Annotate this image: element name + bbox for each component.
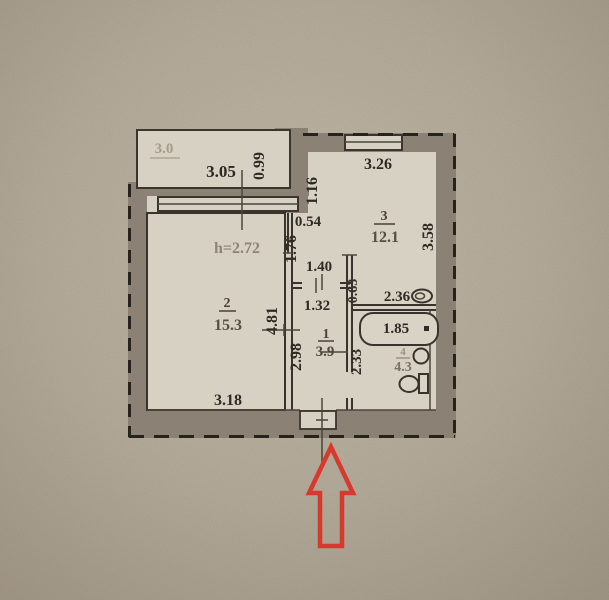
- dim-3-58: 3.58: [420, 223, 437, 251]
- outer-wall-left: [128, 182, 147, 438]
- dim-3-05: 3.05: [206, 162, 236, 181]
- hallway-number-label: 1: [323, 327, 330, 342]
- dim-3-26: 3.26: [364, 156, 392, 173]
- kitchen-number-label: 3: [381, 209, 388, 224]
- dim-2-33: 2.33: [349, 349, 365, 375]
- floor-plan-canvas: 3.0 3.05 0.99 3.26 1.16 3.58 3 12.1 0.54…: [0, 0, 609, 600]
- kitchen-area-label: 12.1: [371, 229, 399, 246]
- dim-0-99: 0.99: [251, 152, 268, 180]
- dim-4-81: 4.81: [264, 307, 281, 335]
- ceiling-height-label: h=2.72: [214, 240, 260, 257]
- bathroom-area-label: 4.3: [394, 360, 412, 375]
- living-number-label: 2: [224, 296, 231, 311]
- living-area-label: 15.3: [214, 317, 242, 334]
- dim-1-32: 1.32: [304, 298, 330, 314]
- bathroom-number-label: 4: [400, 346, 406, 358]
- dim-0-54: 0.54: [295, 214, 322, 230]
- dim-2-36: 2.36: [384, 289, 411, 305]
- dim-0-63: 0.63: [346, 279, 361, 304]
- hallway-area-label: 3.9: [316, 344, 335, 360]
- toilet-bowl-icon: [400, 376, 419, 392]
- dim-2-98: 2.98: [288, 343, 305, 371]
- balcony-area-label: 3.0: [155, 141, 174, 157]
- floor-plan-photo: 3.0 3.05 0.99 3.26 1.16 3.58 3 12.1 0.54…: [0, 0, 609, 600]
- outer-wall-bottom: [128, 410, 456, 438]
- dim-3-18: 3.18: [214, 392, 242, 409]
- bathtub-drain-dot: [424, 326, 429, 331]
- bath-sink-icon: [414, 349, 429, 364]
- dim-1-40: 1.40: [306, 259, 332, 275]
- kitchen-sink-icon: [412, 290, 432, 303]
- dim-1-85: 1.85: [383, 321, 409, 337]
- toilet-tank-icon: [419, 374, 428, 393]
- floor-plan: 3.0 3.05 0.99 3.26 1.16 3.58 3 12.1 0.54…: [128, 128, 456, 462]
- dim-1-16: 1.16: [304, 177, 321, 205]
- dim-1-76: 1.76: [283, 235, 300, 263]
